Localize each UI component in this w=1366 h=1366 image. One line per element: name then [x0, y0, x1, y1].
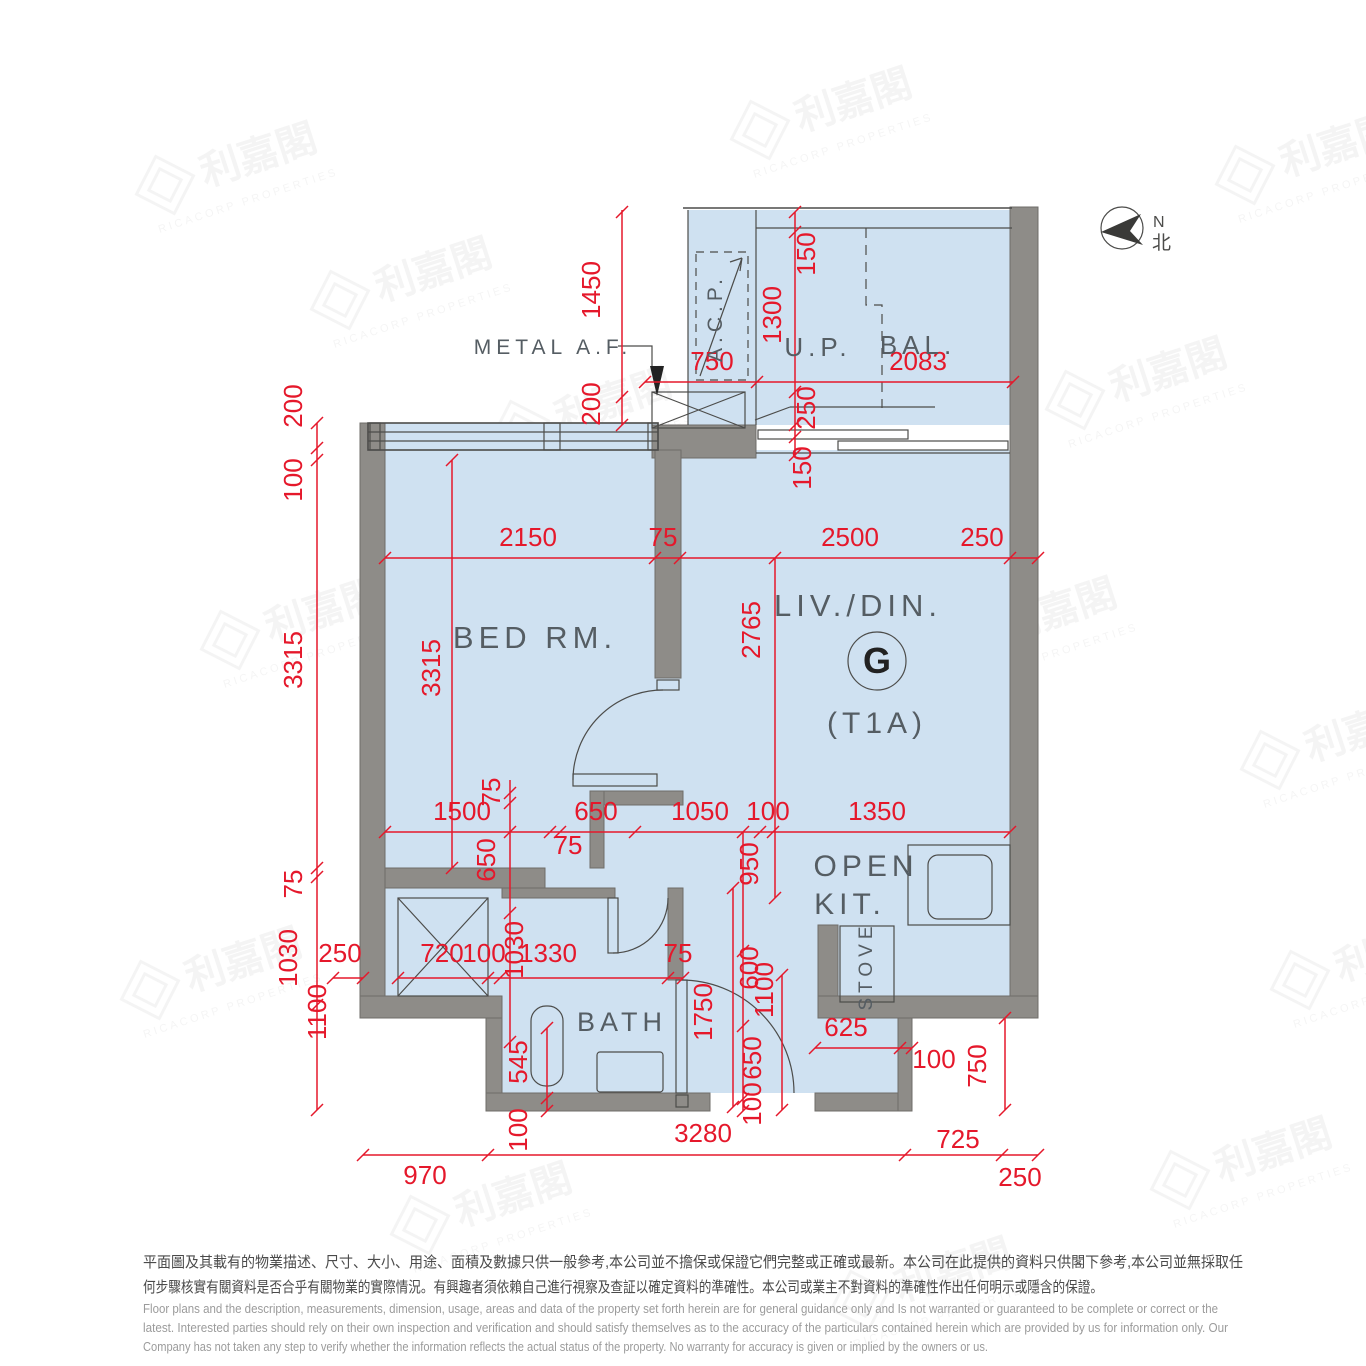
- ricacorp-watermark: 利嘉閣RICACORP PROPERTIES: [127, 104, 340, 239]
- north-indicator: N 北: [1101, 207, 1171, 254]
- ricacorp-watermark: 利嘉閣RICACORP PROPERTIES: [1037, 319, 1250, 454]
- dimension-label: 1330: [519, 938, 577, 968]
- disclaimer-en-line1: Floor plans and the description, measure…: [143, 1301, 1218, 1316]
- dimension-label: 1050: [671, 796, 729, 826]
- sliding-door-panel: [838, 441, 1008, 450]
- dimension-label: 75: [554, 830, 583, 860]
- dimension-label: 970: [403, 1160, 446, 1190]
- dimension-label: 545: [503, 1040, 533, 1083]
- dimension-label: 750: [962, 1044, 992, 1087]
- dimension-label: 250: [960, 522, 1003, 552]
- dimension-label: 150: [791, 232, 821, 275]
- living-dining-label: LIV./DIN.: [774, 588, 942, 623]
- dimension-label: 100: [278, 458, 308, 501]
- dimension-label: 650: [574, 796, 617, 826]
- metal-af-label: METAL A.F.: [474, 336, 633, 359]
- dimension-label: 720: [420, 938, 463, 968]
- dimension-label: 1300: [757, 286, 787, 344]
- balcony-floor: [688, 210, 1012, 425]
- ricacorp-watermark: 利嘉閣RICACORP PROPERTIES: [302, 219, 515, 354]
- dimension-label: 3315: [278, 631, 308, 689]
- dimension-label: 2150: [499, 522, 557, 552]
- dimension-label: 100: [462, 938, 505, 968]
- dimension-label: 100: [912, 1044, 955, 1074]
- ricacorp-watermark: 利嘉閣RICACORP PROPERTIES: [1232, 679, 1366, 814]
- ricacorp-watermark: 利嘉閣RICACORP PROPERTIES: [722, 49, 935, 184]
- tower-label: (T1A): [827, 707, 927, 740]
- dimension-label: 200: [576, 382, 606, 425]
- bal-label: BAL.: [880, 330, 956, 360]
- dimension-label: 1450: [576, 261, 606, 319]
- disclaimer: 平面圖及其載有的物業描述、尺寸、大小、用途、面積及數據只供一般參考,本公司並不擔…: [143, 1253, 1243, 1354]
- ricacorp-watermark: 利嘉閣RICACORP PROPERTIES: [1207, 94, 1366, 229]
- sliding-door-panel: [758, 430, 908, 439]
- ricacorp-watermark: 利嘉閣RICACORP PROPERTIES: [1262, 899, 1366, 1034]
- dimension-label: 1030: [273, 929, 303, 987]
- floor-plan: 利嘉閣RICACORP PROPERTIES利嘉閣RICACORP PROPER…: [0, 0, 1366, 1366]
- dimension-label: 625: [824, 1012, 867, 1042]
- flat-letter: G: [863, 640, 891, 681]
- bedroom-window-band: [368, 423, 658, 450]
- dimension-label: 725: [936, 1124, 979, 1154]
- svg-text:利嘉閣: 利嘉閣: [1300, 691, 1366, 770]
- dimension-label: 100: [737, 1082, 767, 1125]
- disclaimer-zh-line2: 何步驟核實有關資料是否合乎有關物業的實際情況。有興趣者須依賴自己進行視察及查証以…: [143, 1278, 1103, 1296]
- open-kit-label-1: OPEN: [813, 850, 918, 883]
- dimension-label: 950: [734, 842, 764, 885]
- north-letter: N: [1153, 214, 1165, 231]
- dimension-label: 3280: [674, 1118, 732, 1148]
- dimension-label: 100: [746, 796, 789, 826]
- stove-label: STOVE: [856, 921, 877, 1010]
- dimension-label: 250: [998, 1162, 1041, 1192]
- dimension-label: 250: [791, 386, 821, 429]
- dimension-label: 1750: [688, 983, 718, 1041]
- dimension-label: 75: [476, 778, 506, 807]
- dimension-label: 650: [737, 1036, 767, 1079]
- svg-text:利嘉閣: 利嘉閣: [1330, 911, 1366, 990]
- bedroom-label: BED RM.: [453, 620, 617, 655]
- dimension-label: 75: [278, 870, 308, 899]
- acp-label: A.C.P.: [704, 274, 727, 362]
- dimension-label: 1350: [848, 796, 906, 826]
- open-kit-label-2: KIT.: [814, 888, 886, 921]
- dimension-label: 1100: [749, 962, 779, 1018]
- dimension-label: 75: [649, 522, 678, 552]
- dimension-label: 150: [787, 446, 817, 489]
- svg-text:利嘉閣: 利嘉閣: [1275, 106, 1366, 185]
- ricacorp-watermark: 利嘉閣RICACORP PROPERTIES: [1142, 1099, 1355, 1234]
- dimension-label: 650: [471, 838, 501, 881]
- dimension-label: 1100: [302, 984, 332, 1040]
- bath-label: BATH: [577, 1007, 667, 1037]
- disclaimer-zh-line1: 平面圖及其載有的物業描述、尺寸、大小、用途、面積及數據只供一般參考,本公司並不擔…: [143, 1253, 1243, 1271]
- dimension-label: 250: [318, 938, 361, 968]
- dimension-label: 3315: [416, 639, 446, 697]
- disclaimer-en-line3: Company has not taken any step to verify…: [143, 1339, 988, 1354]
- dimension-label: 75: [664, 938, 693, 968]
- dimension-label: 100: [503, 1108, 533, 1151]
- disclaimer-en-line2: latest. Interested parties should rely o…: [143, 1320, 1229, 1335]
- dimension-label: 200: [278, 384, 308, 427]
- dimension-label: 2500: [821, 522, 879, 552]
- north-char: 北: [1152, 232, 1171, 254]
- up-label: U.P.: [784, 332, 851, 362]
- north-arrow-icon: [1101, 214, 1143, 245]
- dimension-label: 2765: [736, 601, 766, 659]
